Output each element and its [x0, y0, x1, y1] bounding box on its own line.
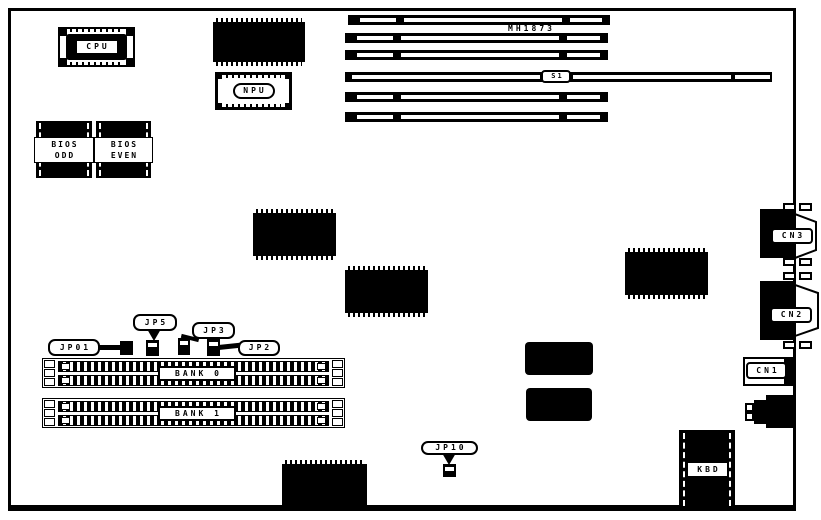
- cn3-mount-tab: [783, 203, 796, 211]
- cn2-mount-tab: [783, 272, 796, 280]
- npu-pin-ticks: [226, 104, 281, 107]
- jumper-jp2-block: [207, 339, 220, 356]
- kbd-label: KBD: [688, 463, 727, 476]
- cpu-corner-icon: [126, 28, 134, 36]
- jumper-jp10-callout: JP10: [421, 441, 478, 455]
- expansion-slot-4-long: S1: [345, 72, 772, 82]
- keyboard-din-jack-neck: [754, 400, 768, 424]
- expansion-slot-6: [345, 112, 608, 122]
- ic-chip: [253, 213, 336, 256]
- jumper-jp01-callout: JP01: [48, 339, 100, 356]
- cpu-corner-icon: [126, 58, 134, 66]
- ic-chip: [213, 22, 305, 62]
- npu-corner-icon: [216, 103, 222, 109]
- bios-odd-line1: BIOS: [49, 140, 78, 150]
- cn3-mount-tab: [799, 203, 812, 211]
- bios-even-label: BIOS EVEN: [94, 137, 153, 163]
- cpu-corner-icon: [59, 58, 67, 66]
- cn3-mount-tab: [799, 258, 812, 266]
- cn2-mount-tab: [783, 341, 796, 349]
- ic-chip: [282, 464, 367, 507]
- bios-even-line2: EVEN: [109, 151, 138, 161]
- expansion-slot-3: [345, 50, 608, 60]
- motherboard-diagram: CPU NPU BIOS ODD BIOS EVEN MH1873: [0, 0, 821, 520]
- bios-odd-chip: BIOS ODD: [36, 121, 92, 178]
- board-model-label: MH1873: [470, 24, 590, 34]
- ic-chip: [525, 342, 593, 375]
- cpu-pin-ticks: [70, 62, 123, 65]
- cn2-label: CN2: [770, 307, 812, 323]
- cpu-pin-ticks: [70, 29, 123, 32]
- jumper-jp5-block: [146, 340, 159, 356]
- cn1-connector: CN1: [743, 357, 795, 386]
- npu-socket: NPU: [215, 72, 292, 110]
- s1-switch-label: S1: [541, 70, 571, 83]
- jumper-jp3-callout: JP3: [192, 322, 235, 339]
- cpu-label: CPU: [77, 41, 117, 53]
- bios-odd-label: BIOS ODD: [34, 137, 94, 163]
- jp01-pointer-icon: [99, 345, 122, 350]
- ic-chip: [625, 252, 708, 295]
- cn1-label: CN1: [746, 362, 787, 379]
- bios-even-chip: BIOS EVEN: [96, 121, 151, 178]
- bios-even-line1: BIOS: [109, 140, 138, 150]
- memory-bank-1: BANK 1: [42, 398, 345, 428]
- bank1-label: BANK 1: [158, 406, 236, 421]
- din-pin-icon: [745, 412, 754, 421]
- jumper-jp5-callout: JP5: [133, 314, 177, 331]
- cn2-mount-tab: [799, 341, 812, 349]
- keyboard-din-jack: [766, 395, 795, 428]
- npu-label: NPU: [233, 83, 275, 99]
- npu-corner-icon: [216, 73, 222, 79]
- expansion-slot-2: [345, 33, 608, 43]
- kbd-edge-dashes: [683, 433, 685, 506]
- npu-corner-icon: [285, 103, 291, 109]
- npu-corner-icon: [285, 73, 291, 79]
- jumper-jp10-block: [443, 464, 456, 477]
- cpu-socket: CPU: [58, 27, 135, 67]
- npu-pin-ticks: [226, 75, 281, 78]
- din-pin-icon: [745, 403, 754, 412]
- expansion-slot-5: [345, 92, 608, 102]
- bank0-label: BANK 0: [158, 366, 236, 381]
- ic-chip: [345, 270, 428, 313]
- kbd-edge-dashes: [729, 433, 731, 506]
- memory-bank-0: BANK 0: [42, 358, 345, 388]
- cn3-mount-tab: [783, 258, 796, 266]
- jumper-jp3-block: [178, 338, 190, 355]
- cn2-mount-tab: [799, 272, 812, 280]
- kbd-chip: KBD: [679, 430, 735, 509]
- cn3-label: CN3: [771, 228, 813, 244]
- cpu-chip: CPU: [66, 34, 127, 60]
- bios-odd-line2: ODD: [53, 151, 75, 161]
- jumper-jp01-block: [120, 341, 133, 355]
- ic-chip: [526, 388, 592, 421]
- jumper-jp2-callout: JP2: [238, 340, 280, 356]
